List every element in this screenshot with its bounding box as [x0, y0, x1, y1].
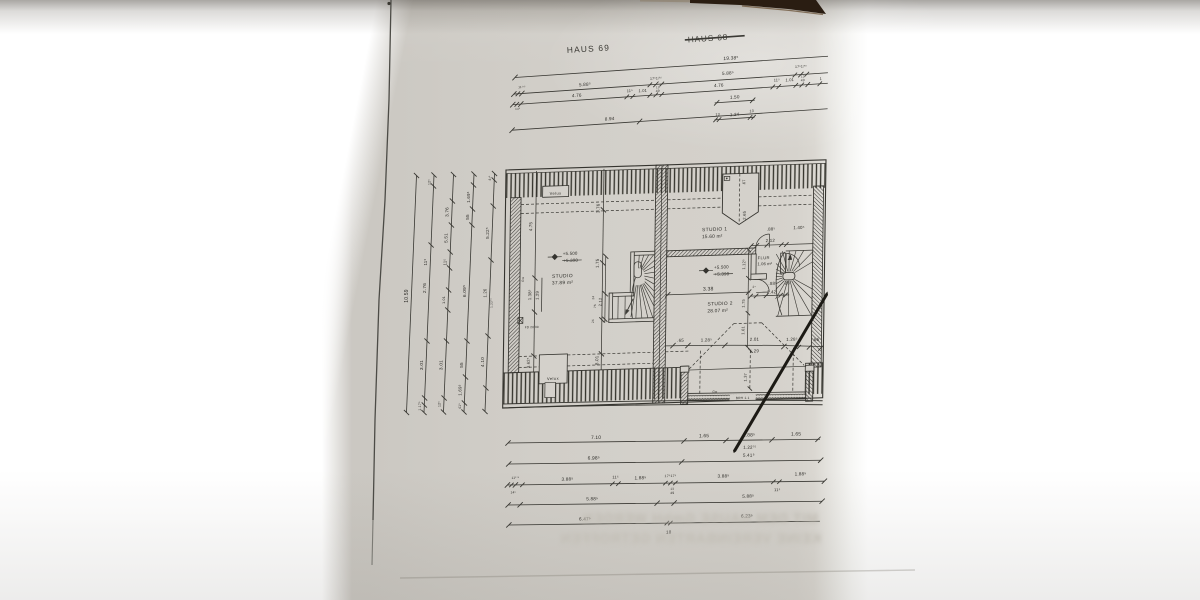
svg-text:STUDIO 1: STUDIO 1 [702, 226, 727, 233]
svg-text:2.65: 2.65 [742, 210, 747, 219]
svg-text:49: 49 [801, 78, 805, 82]
svg-text:1.40⁵: 1.40⁵ [793, 225, 804, 230]
svg-text:1.26: 1.26 [483, 288, 488, 297]
svg-text:28: 28 [785, 280, 791, 285]
svg-text:1.06 m²: 1.06 m² [758, 261, 773, 266]
svg-text:14⁵: 14⁵ [515, 107, 521, 111]
svg-text:1.01: 1.01 [442, 296, 446, 304]
svg-text:37.89 m²: 37.89 m² [552, 280, 574, 287]
svg-text:1.69⁵: 1.69⁵ [466, 191, 471, 202]
svg-text:3.01: 3.01 [419, 360, 425, 370]
svg-text:10.59: 10.59 [404, 289, 410, 303]
svg-text:14⁵: 14⁵ [511, 490, 517, 494]
svg-text:1.88⁵: 1.88⁵ [635, 475, 647, 480]
svg-text:11⁵: 11⁵ [423, 259, 428, 266]
svg-text:FD 20/30: FD 20/30 [525, 325, 539, 329]
svg-text:1.75: 1.75 [595, 258, 600, 268]
svg-text:11⁵: 11⁵ [443, 259, 448, 266]
svg-text:11¹⁷⁵: 11¹⁷⁵ [518, 85, 526, 90]
svg-text:BRH 1.1: BRH 1.1 [736, 396, 750, 400]
svg-text:3.01: 3.01 [438, 360, 444, 370]
svg-text:5.88⁵: 5.88⁵ [722, 70, 734, 76]
svg-text:17⁵17⁵: 17⁵17⁵ [665, 474, 677, 478]
svg-text:8.01: 8.01 [594, 355, 599, 365]
svg-text:11⁵: 11⁵ [774, 77, 780, 82]
svg-text:6.98⁵: 6.98⁵ [588, 455, 600, 461]
svg-text:1.65: 1.65 [699, 433, 709, 439]
svg-text:5.88⁵: 5.88⁵ [579, 82, 591, 88]
svg-text:1.88⁵: 1.88⁵ [795, 471, 807, 476]
svg-text:1.50: 1.50 [730, 94, 740, 100]
svg-text:3.38: 3.38 [703, 286, 714, 292]
svg-text:STUDIO 2: STUDIO 2 [707, 301, 732, 308]
svg-text:1.22⁷⁵: 1.22⁷⁵ [490, 298, 494, 308]
svg-text:76: 76 [593, 304, 597, 308]
svg-text:5.88⁵: 5.88⁵ [742, 494, 754, 499]
svg-text:11⁵: 11⁵ [627, 88, 633, 93]
svg-text:11⁵: 11⁵ [774, 487, 781, 492]
svg-text:Velux: Velux [547, 376, 559, 381]
svg-text:1.69⁵: 1.69⁵ [458, 384, 463, 395]
svg-text:15.60 m²: 15.60 m² [702, 234, 723, 241]
svg-text:HAUS 69: HAUS 69 [567, 42, 611, 55]
svg-text:2.42: 2.42 [767, 289, 777, 294]
svg-text:1.12⁵: 1.12⁵ [741, 259, 746, 270]
svg-text:13: 13 [749, 109, 754, 113]
svg-text:55: 55 [459, 362, 464, 368]
svg-text:1.17⁵: 1.17⁵ [418, 401, 422, 411]
svg-text:FLUR: FLUR [758, 255, 770, 260]
svg-text:KEINE VEREINBARTEN GETROFFEN: KEINE VEREINBARTEN GETROFFEN [560, 531, 821, 546]
svg-text:3.88⁵: 3.88⁵ [562, 477, 574, 482]
svg-text:2.01: 2.01 [750, 337, 760, 342]
svg-text:2.12: 2.12 [598, 297, 603, 306]
svg-text:55: 55 [465, 214, 470, 220]
svg-text:41⁵: 41⁵ [458, 403, 462, 409]
svg-text:Gw: Gw [712, 390, 718, 394]
svg-text:6.09⁵: 6.09⁵ [462, 285, 468, 297]
svg-text:.65: .65 [677, 338, 684, 343]
svg-text:4.75: 4.75 [528, 221, 533, 231]
svg-text:Gw: Gw [521, 276, 525, 282]
svg-text:2.76: 2.76 [422, 283, 428, 293]
svg-text:.65: .65 [813, 337, 820, 342]
svg-text:4¹⁵: 4¹⁵ [488, 175, 492, 181]
svg-text:.67: .67 [741, 179, 746, 185]
svg-text:1.75: 1.75 [741, 298, 746, 307]
svg-text:4.76: 4.76 [714, 82, 724, 88]
svg-text:28.07 m²: 28.07 m² [707, 308, 728, 315]
svg-text:5.88⁵: 5.88⁵ [586, 496, 598, 501]
svg-text:1.28⁵: 1.28⁵ [786, 337, 797, 342]
svg-text:24: 24 [591, 319, 595, 323]
svg-text:3.62⁵: 3.62⁵ [526, 357, 531, 368]
svg-text:1.65: 1.65 [791, 431, 801, 437]
svg-text:Velux: Velux [550, 191, 562, 196]
svg-text:7.10: 7.10 [591, 435, 601, 441]
svg-text:4.76: 4.76 [572, 93, 582, 99]
svg-text:12⁵: 12⁵ [428, 179, 432, 185]
svg-text:11⁵: 11⁵ [612, 474, 619, 479]
svg-text:13: 13 [715, 113, 720, 117]
svg-text:1.61: 1.61 [740, 325, 745, 334]
svg-text:1.01: 1.01 [639, 88, 648, 94]
svg-text:.88⁵: .88⁵ [767, 226, 776, 231]
svg-text:3.76: 3.76 [596, 203, 601, 213]
svg-text:24: 24 [591, 296, 595, 300]
svg-text:1.37: 1.37 [743, 372, 748, 381]
svg-text:19.38⁵: 19.38⁵ [723, 55, 738, 62]
svg-text:5.51: 5.51 [444, 233, 449, 243]
svg-text:+5.500: +5.500 [714, 264, 729, 269]
svg-text:3.88⁵: 3.88⁵ [718, 474, 730, 479]
svg-text:5.22⁵: 5.22⁵ [485, 227, 490, 239]
svg-text:5.41⁵: 5.41⁵ [743, 453, 755, 458]
svg-text:49: 49 [670, 491, 674, 495]
svg-text:17⁵17⁵: 17⁵17⁵ [650, 76, 662, 81]
svg-text:1: 1 [820, 76, 822, 81]
svg-text:2⁴: 2⁴ [752, 285, 756, 289]
svg-text:8.94: 8.94 [605, 116, 615, 122]
svg-text:STUDIO: STUDIO [552, 273, 573, 280]
svg-text:11¹⁷⁵: 11¹⁷⁵ [512, 476, 520, 480]
svg-text:1.22⁷⁵: 1.22⁷⁵ [743, 445, 756, 450]
svg-text:1.24: 1.24 [730, 112, 740, 118]
svg-text:1.01: 1.01 [786, 77, 795, 83]
svg-text:1.28⁵: 1.28⁵ [701, 337, 712, 342]
svg-text:17⁵17⁵: 17⁵17⁵ [795, 64, 807, 69]
svg-text:+5.500: +5.500 [563, 251, 578, 256]
svg-text:1.29: 1.29 [535, 290, 540, 300]
svg-text:2.12: 2.12 [766, 238, 776, 243]
svg-text:12⁵: 12⁵ [438, 401, 442, 407]
svg-text:MIT DEM HAUSE GmbH WERDEN: MIT DEM HAUSE GmbH WERDEN [582, 511, 818, 526]
svg-text:49: 49 [656, 89, 660, 93]
svg-text:3.76: 3.76 [445, 207, 450, 217]
svg-text:4.10: 4.10 [480, 357, 486, 367]
svg-text:1.38⁵: 1.38⁵ [527, 289, 532, 300]
